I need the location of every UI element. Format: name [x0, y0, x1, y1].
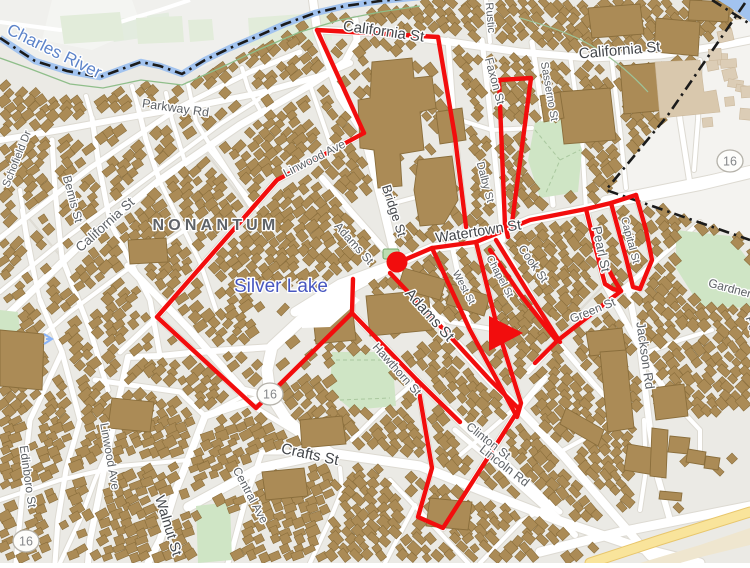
svg-text:16: 16: [263, 388, 277, 402]
svg-text:16: 16: [723, 155, 737, 169]
svg-text:16: 16: [19, 535, 33, 549]
svg-text:Silver Lake: Silver Lake: [234, 276, 328, 297]
svg-text:NONANTUM: NONANTUM: [153, 217, 280, 234]
